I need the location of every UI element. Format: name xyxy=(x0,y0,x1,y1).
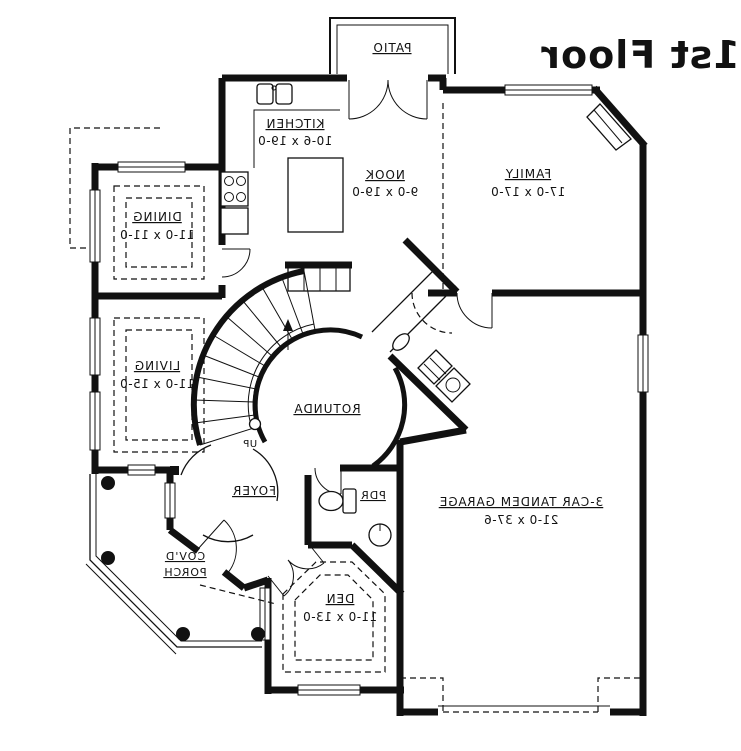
room-label-patio: PATIO xyxy=(372,41,411,55)
room-label-pdr: PDR xyxy=(360,489,386,502)
porch-column xyxy=(176,627,190,641)
room-dims-den: 11-0 x 13-0 xyxy=(303,610,378,624)
room-dims-nook: 9-0 x 19-0 xyxy=(352,185,419,199)
room-dims-family: 17-0 x 17-0 xyxy=(491,185,566,199)
room-dims-garage: 21-0 x 37-6 xyxy=(484,513,559,527)
room-label-foyer: FOYER xyxy=(232,484,276,498)
room-label-porch-line2: PORCH xyxy=(163,566,206,579)
stair-newel xyxy=(250,419,261,430)
porch-column xyxy=(251,627,265,641)
room-dims-living: 11-0 x 15-0 xyxy=(120,377,195,391)
room-label-kitchen: KITCHEN xyxy=(266,117,325,131)
toilet-icon xyxy=(319,492,343,511)
room-label-dining: DINING xyxy=(132,210,182,224)
kitchen-fixtures xyxy=(221,84,343,234)
room-label-nook: NOOK xyxy=(365,168,405,182)
stair-up-label: UP xyxy=(243,439,257,450)
room-label-living: LIVING xyxy=(134,359,180,373)
doors xyxy=(198,80,492,596)
oven-icon xyxy=(221,208,248,234)
floor-plan-svg: 1st Floor PATIO KITCHEN 10-6 x 19-0 NOOK… xyxy=(0,0,741,751)
labels: 1st Floor PATIO KITCHEN 10-6 x 19-0 NOOK… xyxy=(120,33,740,624)
room-label-garage: 3-CAR TANDEM GARAGE xyxy=(439,495,604,509)
porch-column xyxy=(101,551,115,565)
room-dims-kitchen: 10-6 x 19-0 xyxy=(258,134,333,148)
room-dims-dining: 11-0 x 11-0 xyxy=(120,228,195,242)
page-title: 1st Floor xyxy=(540,33,739,77)
floor-plan-page: 1st Floor PATIO KITCHEN 10-6 x 19-0 NOOK… xyxy=(0,0,741,751)
porch-column xyxy=(101,476,115,490)
kitchen-island xyxy=(288,158,343,232)
room-label-family: FAMILY xyxy=(505,167,551,181)
kitchen-sink xyxy=(257,84,273,104)
room-label-rotunda: ROTUNDA xyxy=(293,402,360,416)
room-label-porch-line1: COV'D xyxy=(165,550,205,563)
room-label-den: DEN xyxy=(326,592,355,606)
